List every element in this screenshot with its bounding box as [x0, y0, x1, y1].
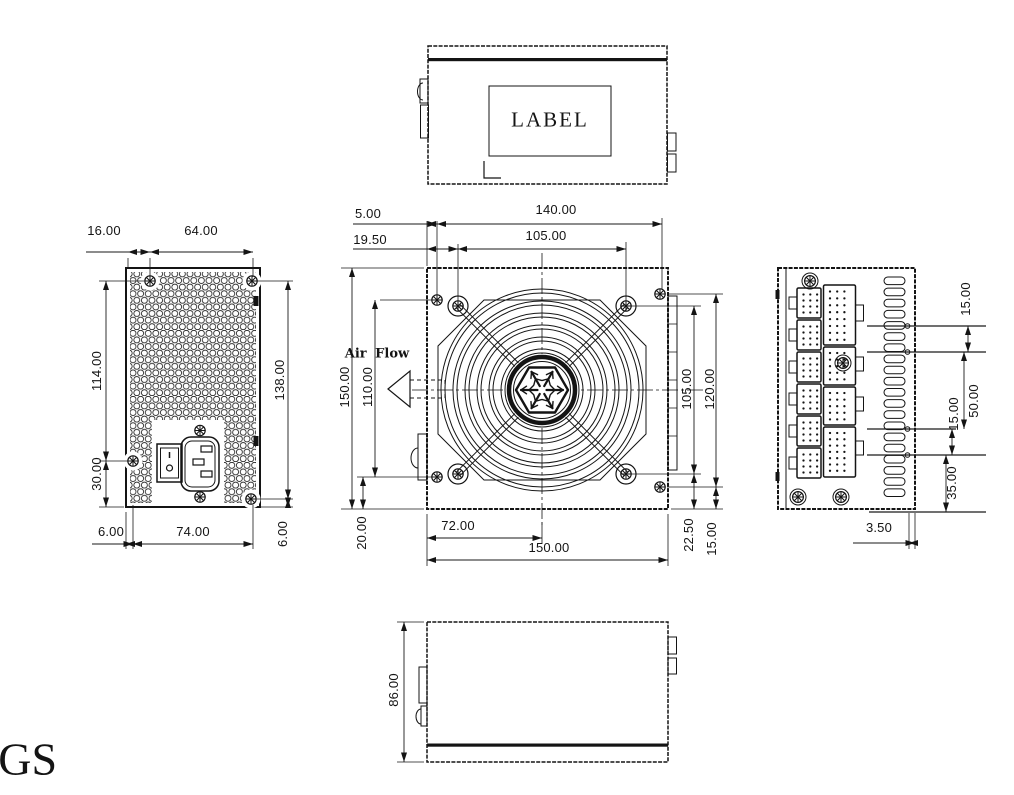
screw-icon	[790, 489, 806, 505]
dim-front-fan-height: 105.00	[680, 369, 694, 410]
dim-front-screw-height: 110.00	[361, 367, 375, 407]
dim-rear-side-lower: 30.00	[90, 457, 104, 491]
drawing-canvas	[0, 0, 1014, 795]
screw-icon	[195, 492, 205, 502]
rear-view	[124, 268, 262, 509]
dim-rear-top-offset: 16.00	[87, 224, 121, 238]
dim-side-vent-mid: 15.00	[947, 397, 961, 431]
screw-icon	[453, 301, 463, 311]
screw-icon	[246, 494, 256, 504]
side-view-dimensions	[853, 324, 986, 549]
dim-rear-side-upper: 114.00	[90, 351, 104, 391]
fan-hub-logo	[506, 354, 578, 426]
dim-rear-height: 138.00	[273, 360, 287, 401]
front-view	[388, 253, 707, 525]
side-view	[776, 268, 916, 509]
dim-rear-screw-span: 64.00	[184, 224, 218, 238]
modular-connector	[824, 285, 864, 345]
air-flow-arrow-icon	[388, 371, 445, 407]
screw-icon	[145, 276, 155, 286]
modular-connector	[789, 384, 821, 414]
bottom-view-dimensions	[397, 622, 424, 762]
modular-connector	[789, 320, 821, 350]
dim-front-half-width: 72.00	[441, 519, 475, 533]
screw-icon	[835, 355, 851, 371]
dim-rear-bottom-span: 74.00	[176, 525, 210, 539]
screw-icon	[655, 482, 665, 492]
dim-front-corner-gap: 22.50	[682, 518, 696, 552]
screw-icon	[453, 469, 463, 479]
dim-front-edge-gap-bottom: 15.00	[705, 522, 719, 556]
screw-icon	[128, 456, 138, 466]
dim-front-height: 150.00	[338, 367, 352, 408]
dim-side-depth-gap: 3.50	[866, 521, 892, 535]
dim-front-edge-gap: 5.00	[355, 207, 381, 221]
modular-connector	[789, 448, 821, 478]
connector-edge-strip	[668, 296, 677, 470]
orientation-mark	[484, 161, 501, 178]
side-tab	[411, 434, 427, 480]
dim-front-width: 150.00	[529, 541, 570, 555]
screw-icon	[432, 295, 442, 305]
screw-icon	[833, 489, 849, 505]
dim-side-vent-top: 15.00	[959, 282, 973, 316]
screw-icon	[195, 425, 205, 435]
dim-side-vent-span: 50.00	[967, 384, 981, 418]
dim-rear-bottom-left: 6.00	[98, 525, 124, 539]
modular-connector	[824, 427, 864, 477]
dim-rear-bottom-right: 6.00	[276, 521, 290, 547]
product-label-text: LABEL	[511, 108, 589, 133]
screw-icon	[247, 276, 257, 286]
dim-front-fan-span: 105.00	[526, 229, 567, 243]
dim-front-bottom-gap: 20.00	[355, 516, 369, 550]
screw-icon	[432, 472, 442, 482]
dim-front-screw-height-right: 120.00	[703, 369, 717, 410]
technical-drawing-page: LABEL Air Flow -GS 16.00 64.00 114.00 30…	[0, 0, 1014, 795]
modular-connector	[789, 416, 821, 446]
bottom-view	[416, 622, 676, 762]
screw-icon	[621, 469, 631, 479]
screw-icon	[621, 301, 631, 311]
modular-connector	[789, 288, 821, 318]
screw-icon	[655, 289, 665, 299]
model-suffix-text: -GS	[0, 733, 57, 786]
dim-side-vent-bottom: 35.00	[945, 466, 959, 500]
dim-front-fan-gap: 19.50	[353, 233, 387, 247]
modular-connector	[789, 352, 821, 382]
vent-slots	[884, 277, 905, 497]
air-flow-label: Air Flow	[345, 347, 409, 362]
modular-connector	[824, 387, 864, 425]
dim-front-screw-span: 140.00	[536, 203, 577, 217]
screw-icon	[802, 273, 818, 289]
dim-bottom-height: 86.00	[387, 673, 401, 707]
